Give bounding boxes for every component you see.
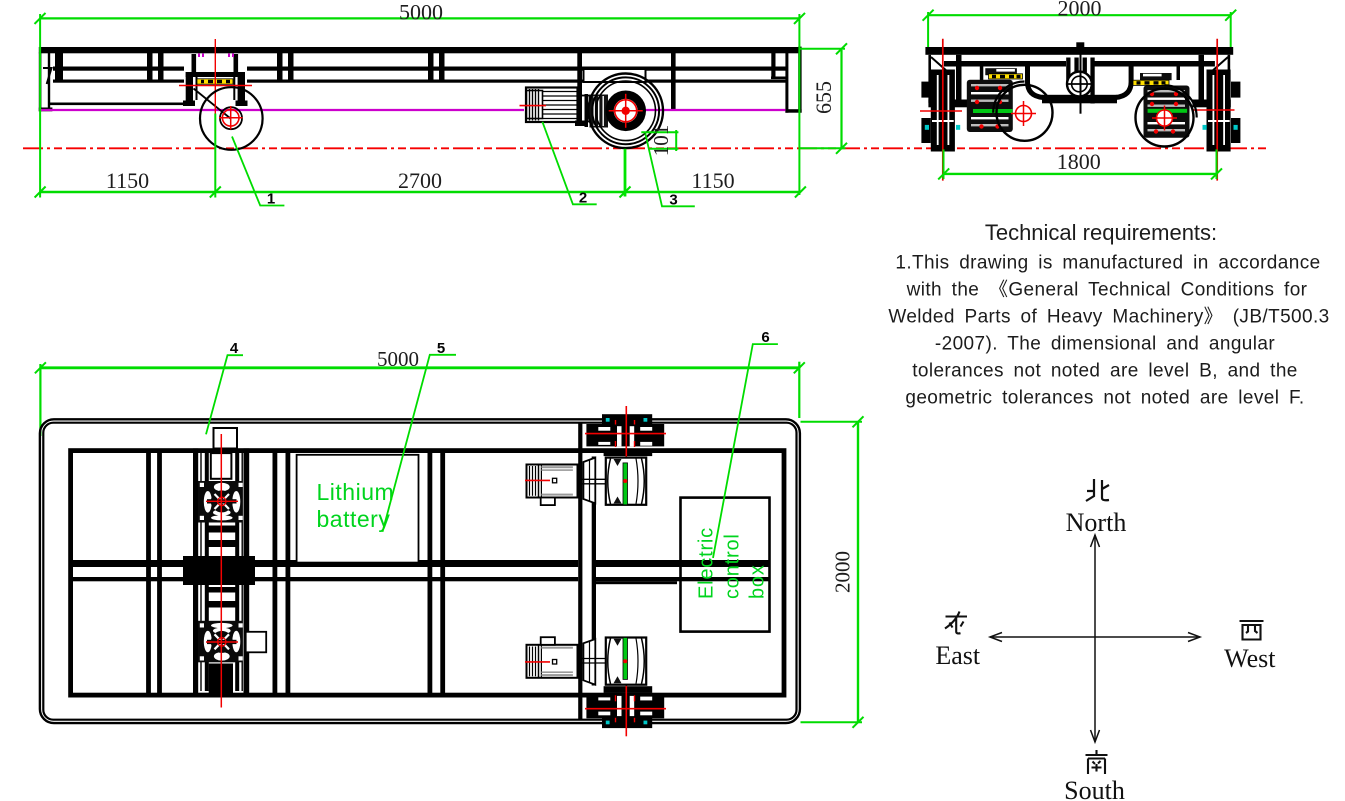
svg-text:1150: 1150 xyxy=(691,168,734,193)
svg-text:East: East xyxy=(935,641,981,670)
svg-text:5: 5 xyxy=(437,340,445,357)
svg-text:2: 2 xyxy=(579,189,587,206)
svg-text:1: 1 xyxy=(267,191,275,208)
svg-text:101: 101 xyxy=(649,125,673,157)
svg-text:Technical requirements:: Technical requirements: xyxy=(985,220,1217,245)
svg-text:Electric: Electric xyxy=(696,527,718,599)
svg-text:6: 6 xyxy=(761,329,769,346)
svg-text:3: 3 xyxy=(669,191,677,208)
svg-text:2000: 2000 xyxy=(1058,0,1102,21)
svg-text:1150: 1150 xyxy=(106,168,149,193)
svg-text:with the 《General Technical Co: with the 《General Technical Conditions f… xyxy=(906,278,1308,300)
svg-text:South: South xyxy=(1064,776,1125,801)
svg-text:Welded Parts of Heavy Machiner: Welded Parts of Heavy Machinery》 (JB/T50… xyxy=(888,306,1329,328)
svg-text:battery: battery xyxy=(317,506,391,532)
svg-text:tolerances not noted are level: tolerances not noted are level B, and th… xyxy=(912,361,1298,382)
svg-text:control: control xyxy=(722,533,744,599)
svg-text:4: 4 xyxy=(230,340,239,357)
svg-text:-2007). The dimensional and an: -2007). The dimensional and angular xyxy=(935,334,1275,355)
svg-text:box: box xyxy=(747,564,769,599)
svg-text:5000: 5000 xyxy=(399,0,443,25)
svg-text:geometric tolerances not noted: geometric tolerances not noted are level… xyxy=(905,388,1304,409)
svg-text:5000: 5000 xyxy=(377,347,419,371)
svg-text:1800: 1800 xyxy=(1057,149,1101,174)
svg-text:1.This drawing is manufactured: 1.This drawing is manufactured in accord… xyxy=(895,252,1320,273)
svg-text:Lithium: Lithium xyxy=(317,479,395,505)
svg-text:North: North xyxy=(1066,508,1127,537)
svg-text:655: 655 xyxy=(811,81,836,114)
svg-text:West: West xyxy=(1224,644,1276,673)
svg-text:2700: 2700 xyxy=(398,168,442,193)
svg-text:2000: 2000 xyxy=(831,551,855,593)
